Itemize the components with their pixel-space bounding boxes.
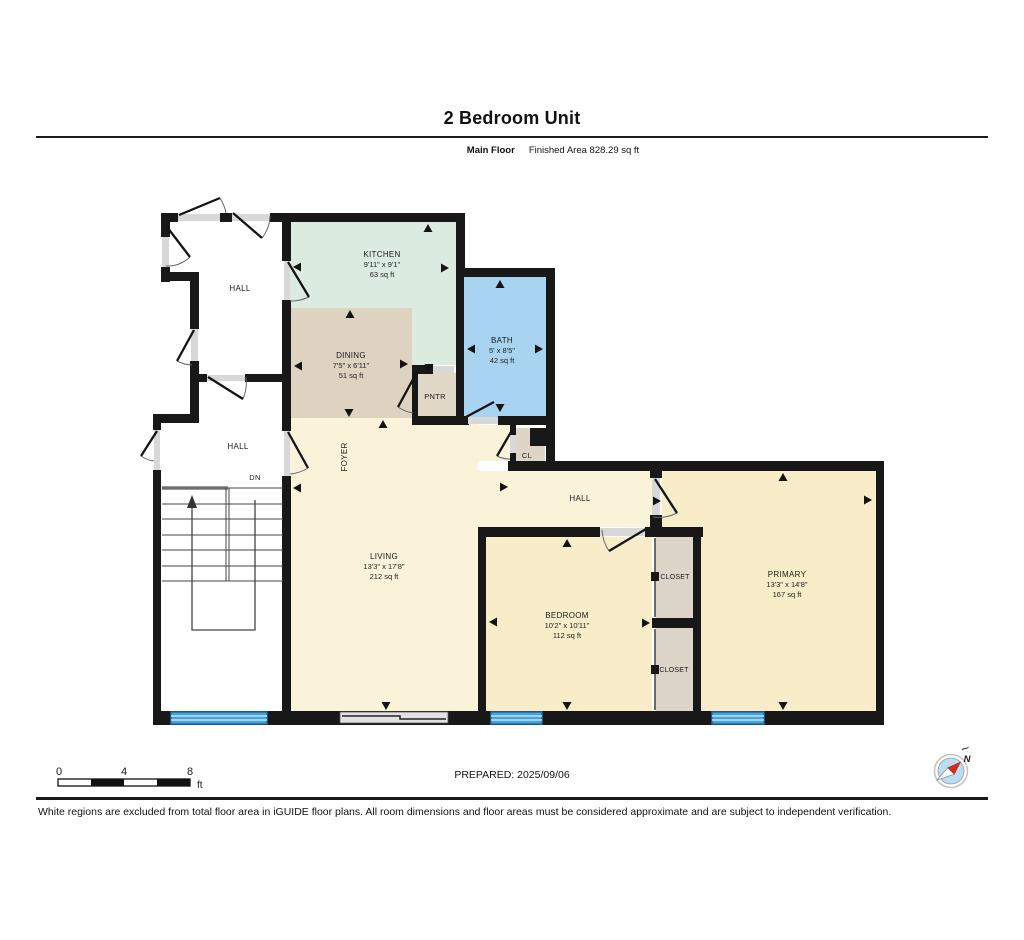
hall-mid-stairwell-floor (161, 378, 283, 711)
window-primary (712, 712, 764, 724)
disclaimer-text: White regions are excluded from total fl… (38, 806, 998, 818)
dining-label: DINING (336, 351, 366, 360)
cl-closet-label: CL (522, 451, 532, 460)
bedroom-label: BEDROOM (545, 611, 588, 620)
compass-icon: N (935, 747, 972, 788)
kitchen-dims: 9'11" x 9'1" (364, 260, 401, 269)
dining-dims: 7'5" x 6'11" (333, 361, 370, 370)
foyer-label: FOYER (340, 442, 349, 471)
window-stairwell (171, 712, 267, 724)
hall-right-floor (478, 471, 652, 527)
living-area: 212 sq ft (370, 572, 400, 581)
compass-north-label: N (964, 754, 972, 765)
living-label: LIVING (370, 552, 398, 561)
window-bedroom (491, 712, 542, 724)
hall-nook-floor (456, 425, 510, 461)
bedroom-area: 112 sq ft (553, 631, 582, 640)
closet-lower-label: CLOSET (659, 667, 689, 674)
prepared-date: PREPARED: 2025/09/06 (0, 769, 1024, 781)
bath-area: 42 sq ft (490, 356, 516, 365)
primary-area: 167 sq ft (773, 590, 803, 599)
pantry-label: PNTR (424, 392, 446, 401)
dining-area: 51 sq ft (339, 371, 365, 380)
hall-mid-label: HALL (227, 442, 248, 451)
scale-unit-label: ft (197, 780, 203, 791)
living-dims: 13'3" x 17'8" (363, 562, 404, 571)
hall-right-label: HALL (569, 494, 590, 503)
kitchen-area: 63 sq ft (370, 270, 396, 279)
closet-upper-label: CLOSET (660, 574, 690, 581)
hall-top-floor (170, 222, 283, 378)
stairs-down-label: DN (249, 473, 260, 482)
compass-flourish (962, 747, 969, 750)
primary-dims: 13'3" x 14'8" (766, 580, 807, 589)
hall-top-label: HALL (229, 284, 250, 293)
bath-dims: 5' x 8'5" (489, 346, 515, 355)
sliding-door (340, 712, 448, 723)
bath-label: BATH (491, 336, 513, 345)
kitchen-label: KITCHEN (363, 250, 400, 259)
primary-label: PRIMARY (768, 570, 807, 579)
bedroom-dims: 10'2" x 10'11" (545, 621, 590, 630)
footer-divider (36, 797, 988, 800)
